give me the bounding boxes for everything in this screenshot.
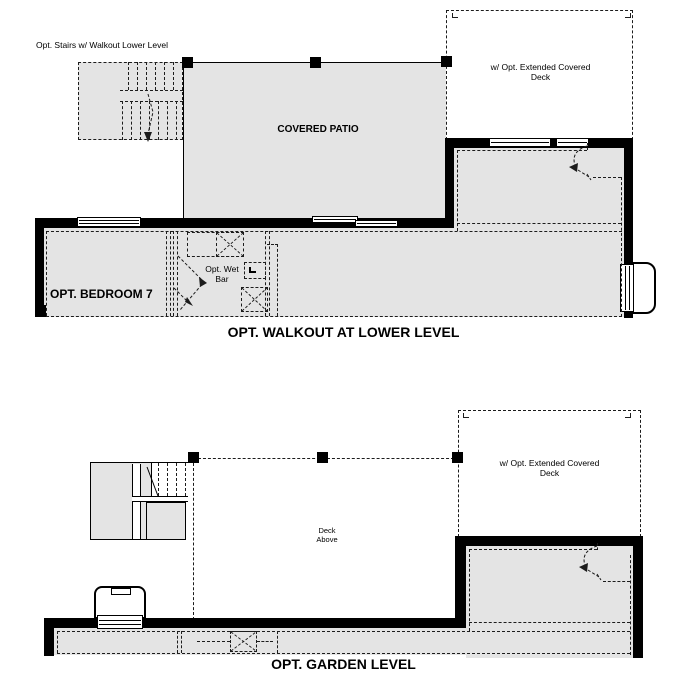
stair-tread [176, 101, 177, 140]
wall-segment [458, 536, 643, 546]
dashed-line [197, 641, 230, 642]
dashed-line [257, 641, 273, 642]
dashed-line [57, 653, 630, 654]
partition-dashed [181, 631, 182, 653]
dashed-line [603, 581, 630, 582]
stair-break-line [145, 464, 161, 498]
strip-fixture [230, 631, 257, 652]
dashed-line [469, 549, 470, 631]
partition-dashed [166, 231, 167, 316]
patio-post [310, 57, 321, 68]
stair-tread [185, 463, 186, 496]
deck-above-outline [193, 463, 194, 620]
stair-tread [164, 62, 165, 90]
deck-above-label: Deck Above [309, 527, 345, 545]
wall-segment [35, 218, 44, 312]
partition-dashed [177, 631, 178, 653]
dashed-line [621, 177, 622, 317]
interior-strip [44, 228, 624, 317]
dashed-line [46, 316, 622, 317]
window-well-step [111, 588, 131, 595]
wet-bar-sink [216, 232, 244, 257]
dashed-line [46, 231, 47, 316]
deck-post [317, 452, 328, 463]
wall-segment [44, 618, 54, 656]
wall-segment [633, 536, 643, 658]
stair-tread [167, 463, 168, 496]
stair-landing-line [120, 90, 183, 91]
stair-tread [176, 463, 177, 496]
stairs-label: Opt. Stairs w/ Walkout Lower Level [36, 40, 206, 50]
floorplan-sheet: Opt. Stairs w/ Walkout Lower Level COVER… [0, 0, 687, 687]
wet-bar-fixture [241, 287, 268, 312]
deck-corner-mark [625, 13, 631, 18]
plan-garden-level: w/ Opt. Extended Covered Deck Deck Above… [0, 350, 687, 687]
wet-bar-cabinet [244, 262, 266, 279]
window [620, 264, 634, 312]
wall-segment [35, 305, 46, 317]
stair-tread [131, 101, 132, 140]
stair-tread [122, 101, 123, 140]
stair-tread [158, 101, 159, 140]
wet-bar-label: Opt. Wet Bar [199, 264, 245, 284]
interior-strip [54, 628, 633, 655]
deck-corner-mark [625, 413, 631, 418]
window [355, 220, 398, 227]
dashed-line [46, 231, 622, 232]
stair-tread [146, 62, 147, 90]
stair-direction-arrow [138, 92, 158, 144]
covered-patio-area [183, 62, 452, 218]
extended-deck-label: w/ Opt. Extended Covered Deck [492, 458, 607, 478]
stair-tread [173, 62, 174, 90]
stair-landing [146, 502, 186, 540]
deck-corner-mark [463, 413, 469, 418]
plan-walkout-lower-level: Opt. Stairs w/ Walkout Lower Level COVER… [0, 0, 687, 350]
extended-deck-label: w/ Opt. Extended Covered Deck [483, 62, 598, 82]
dashed-line [457, 223, 621, 224]
stair-tread [128, 62, 129, 90]
deck-corner-mark [452, 13, 458, 18]
door-swing-arc [563, 140, 603, 185]
stair-tread [155, 62, 156, 90]
wall-segment [445, 138, 454, 228]
patio-post [441, 56, 452, 67]
dashed-line [469, 622, 630, 623]
dashed-line [630, 555, 631, 655]
covered-patio-label: COVERED PATIO [276, 124, 360, 136]
window [77, 217, 141, 227]
bedroom-7-label: OPT. BEDROOM 7 [50, 287, 153, 301]
dashed-line [277, 244, 278, 316]
dashed-line [267, 244, 278, 245]
window [489, 138, 551, 147]
stair-tread [167, 101, 168, 140]
plan-garden-title: OPT. GARDEN LEVEL [0, 656, 687, 673]
window [97, 615, 143, 629]
dashed-line [593, 177, 621, 178]
plan-walkout-title: OPT. WALKOUT AT LOWER LEVEL [0, 324, 687, 341]
dashed-line [57, 631, 630, 632]
dashed-line [57, 631, 58, 653]
door-swing-arc [573, 540, 613, 585]
stair-tread [137, 62, 138, 90]
partition-dashed [170, 231, 171, 316]
deck-post [452, 452, 463, 463]
window [312, 216, 358, 223]
patio-post [182, 57, 193, 68]
dashed-line [457, 150, 458, 231]
wall-segment [455, 536, 466, 628]
wall-segment [624, 138, 633, 266]
dashed-line [277, 631, 278, 653]
